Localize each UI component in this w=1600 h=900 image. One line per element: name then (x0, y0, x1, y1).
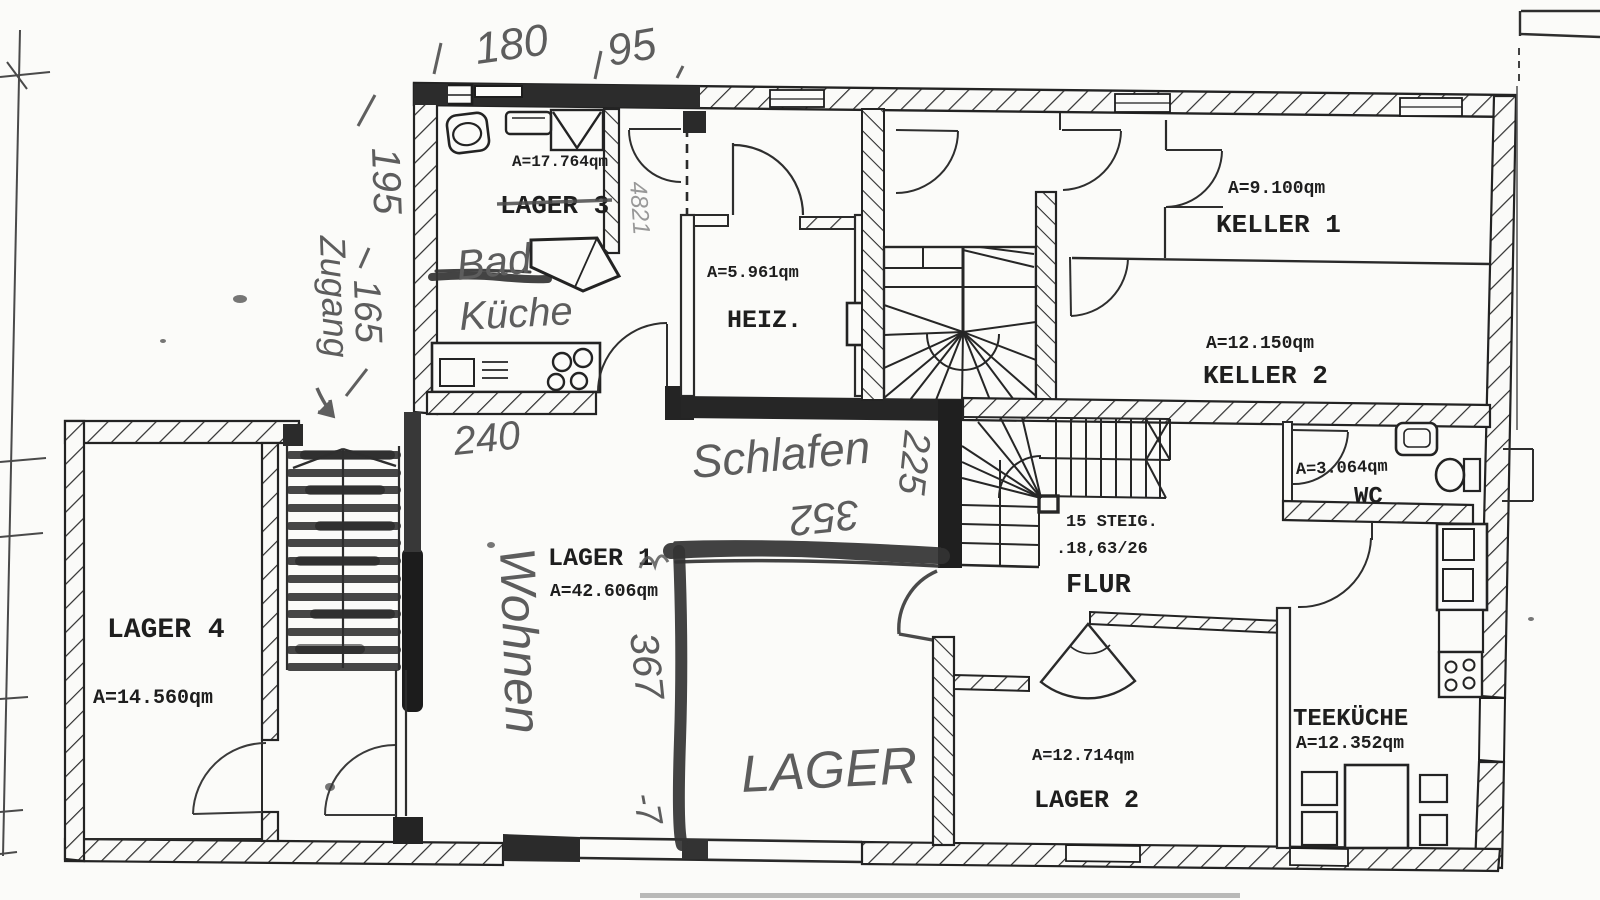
svg-text:HEIZ.: HEIZ. (727, 306, 802, 335)
svg-text:240: 240 (450, 413, 522, 464)
svg-text:A=12.352qm: A=12.352qm (1296, 734, 1404, 754)
svg-text:KELLER 1: KELLER 1 (1216, 210, 1341, 240)
svg-text:225: 225 (889, 428, 938, 497)
svg-text:A=5.961qm: A=5.961qm (707, 264, 799, 283)
svg-text:4821: 4821 (624, 181, 655, 236)
svg-text:A=14.560qm: A=14.560qm (93, 687, 213, 710)
svg-text:Wohnen: Wohnen (489, 546, 551, 734)
svg-text:A=12.150qm: A=12.150qm (1206, 334, 1314, 354)
svg-text:367: 367 (621, 630, 672, 703)
svg-text:A=3.064qm: A=3.064qm (1296, 458, 1388, 480)
svg-text:KELLER 2: KELLER 2 (1203, 361, 1328, 391)
svg-text:352: 352 (787, 491, 862, 545)
svg-text:Bad: Bad (454, 234, 535, 289)
svg-text:A=42.606qm: A=42.606qm (550, 582, 658, 602)
svg-text:Küche: Küche (458, 289, 574, 339)
svg-text:LAGER: LAGER (740, 737, 919, 804)
svg-text:LAGER 3: LAGER 3 (500, 191, 609, 221)
svg-text:A=17.764qm: A=17.764qm (512, 153, 608, 171)
svg-text:LAGER 4: LAGER 4 (107, 615, 225, 646)
svg-text:LAGER 1: LAGER 1 (548, 544, 653, 573)
svg-text:180: 180 (472, 15, 552, 74)
svg-text:LAGER 2: LAGER 2 (1034, 786, 1139, 815)
svg-text:.18,63/26: .18,63/26 (1056, 540, 1148, 559)
svg-text:FLUR: FLUR (1066, 571, 1132, 601)
svg-text:195: 195 (363, 147, 409, 216)
svg-text:15 STEIG.: 15 STEIG. (1066, 513, 1158, 532)
svg-text:TEEKÜCHE: TEEKÜCHE (1293, 705, 1408, 733)
svg-text:Zugang: Zugang (312, 234, 357, 358)
svg-text:A=9.100qm: A=9.100qm (1228, 179, 1325, 199)
svg-text:95: 95 (603, 19, 660, 76)
svg-text:A=12.714qm: A=12.714qm (1032, 747, 1134, 766)
svg-text:WC: WC (1354, 484, 1383, 511)
